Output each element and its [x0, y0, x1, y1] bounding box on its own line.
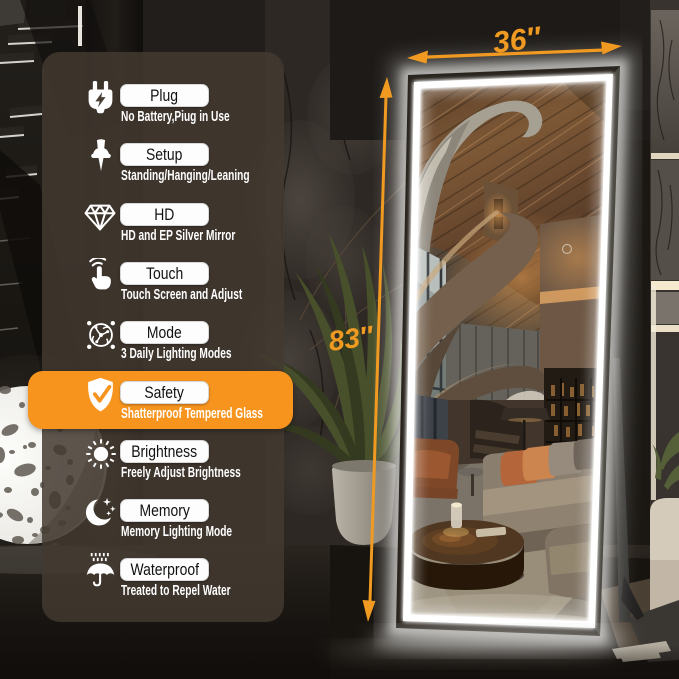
svg-text:83″: 83″: [327, 320, 377, 357]
svg-text:36″: 36″: [491, 21, 544, 60]
